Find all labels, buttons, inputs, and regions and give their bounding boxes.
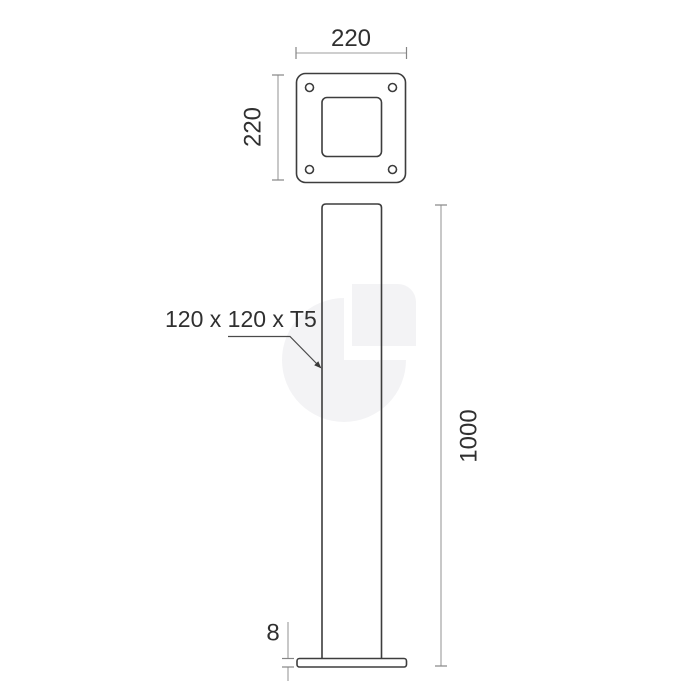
dimension-overall-height: 1000 — [435, 205, 483, 666]
label-post-profile: 120 x 120 x T5 — [165, 306, 317, 332]
bolt-hole-top-right — [389, 84, 397, 92]
bolt-hole-bottom-left — [306, 166, 314, 174]
dimension-base-thickness: 8 — [266, 620, 294, 682]
top-view — [297, 74, 406, 183]
front-view-base-plate — [297, 659, 407, 668]
front-view-post — [322, 204, 382, 659]
top-view-post-section — [322, 98, 382, 157]
watermark-quarter-square — [352, 284, 416, 346]
dim-label-overall-height: 1000 — [456, 409, 483, 462]
dimension-plate-width: 220 — [296, 25, 407, 59]
dim-label-plate-depth: 220 — [240, 107, 267, 147]
front-view — [297, 204, 407, 667]
dimension-plate-depth: 220 — [240, 75, 285, 180]
dim-label-plate-width: 220 — [331, 25, 371, 52]
bolt-hole-bottom-right — [389, 166, 397, 174]
technical-drawing: 220 220 120 x 120 x T5 1000 — [0, 0, 700, 700]
drawing-canvas: 220 220 120 x 120 x T5 1000 — [0, 0, 700, 700]
logo-watermark — [282, 284, 416, 422]
bolt-hole-top-left — [306, 84, 314, 92]
dim-label-base-thickness: 8 — [266, 620, 279, 647]
